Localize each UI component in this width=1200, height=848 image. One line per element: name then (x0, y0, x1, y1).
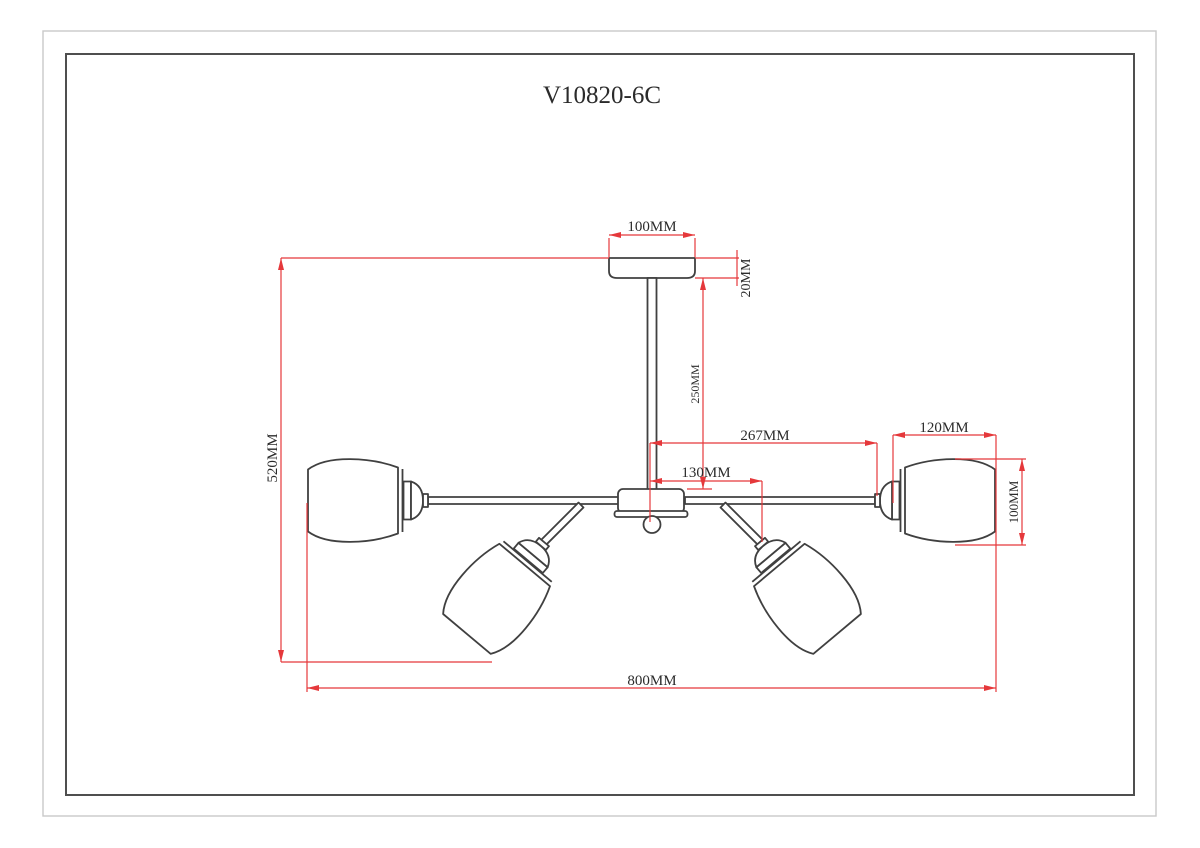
inner-border (66, 54, 1134, 795)
dim-label-shade-height: 100MM (1006, 480, 1021, 523)
dim-canopy-height (695, 250, 739, 286)
ceiling-canopy (609, 258, 695, 278)
model-title: V10820-6C (543, 82, 661, 109)
arm-right (685, 497, 875, 504)
dim-label-canopy-height: 20MM (739, 258, 754, 297)
dim-label-overall-width: 800MM (627, 673, 676, 689)
lamp-assembly-left (308, 459, 428, 542)
dim-label-overall-height: 520MM (265, 433, 281, 482)
hub-finial (644, 516, 661, 533)
arm-diagonal-left (541, 503, 583, 545)
dim-label-canopy-diameter: 100MM (627, 219, 676, 235)
dim-label-rod-length: 250MM (688, 364, 702, 404)
dim-canopy-diameter (609, 235, 695, 257)
down-rod (648, 278, 657, 491)
outer-border (43, 31, 1156, 816)
arm-left (428, 497, 620, 504)
fixture-drawing (308, 258, 995, 661)
hub-body (618, 489, 684, 513)
dim-label-shade-width: 120MM (919, 420, 968, 436)
arm-diagonal-right (721, 503, 763, 545)
dim-label-arm-inner: 130MM (681, 465, 730, 481)
dimension-labels: 100MM 20MM 250MM 267MM 130MM 520MM 800MM… (265, 219, 1021, 689)
technical-drawing-page: V10820-6C (0, 0, 1200, 848)
dim-label-arm-outer: 267MM (740, 428, 789, 444)
drawing-canvas: V10820-6C (0, 0, 1200, 848)
